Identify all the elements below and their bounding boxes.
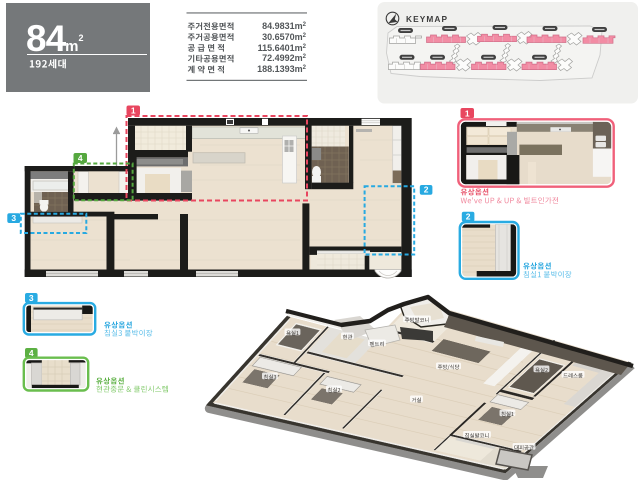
svg-text:2: 2: [424, 185, 429, 195]
svg-text:3: 3: [11, 213, 16, 223]
svg-text:KEYMAP: KEYMAP: [406, 14, 448, 24]
svg-text:2: 2: [466, 212, 471, 222]
svg-text:4: 4: [78, 153, 83, 163]
svg-text:1: 1: [465, 108, 470, 118]
svg-text:1: 1: [131, 106, 136, 116]
